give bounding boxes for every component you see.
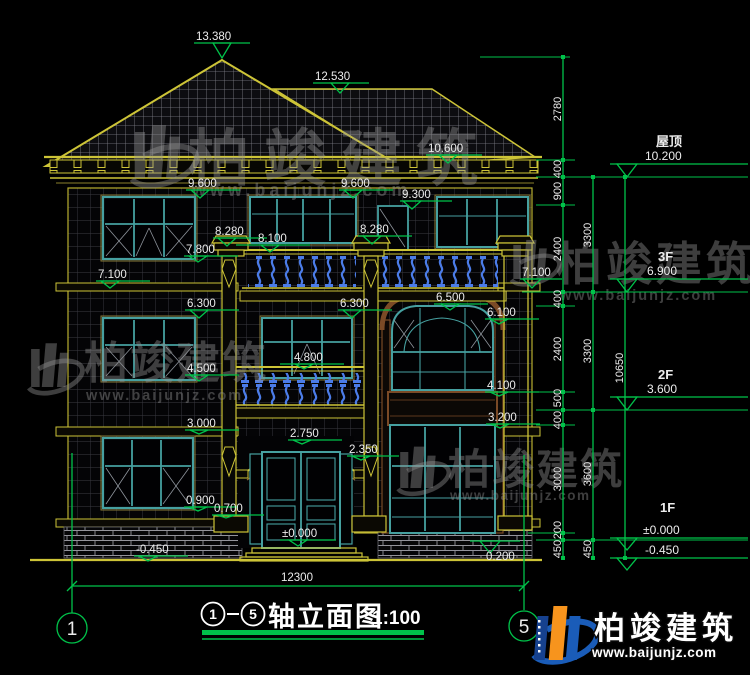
level-value: 3.600 bbox=[647, 382, 677, 396]
title-axis-from: 1 bbox=[209, 606, 217, 622]
elev-label: 7.100 bbox=[98, 269, 127, 281]
elev-label: 7.800 bbox=[186, 244, 215, 256]
axis-bubble-5-label: 5 bbox=[519, 617, 530, 638]
dim-text: 2780 bbox=[552, 97, 564, 121]
elev-label: 13.380 bbox=[196, 31, 231, 43]
elev-label: 2.350 bbox=[349, 444, 378, 456]
title-text: 轴立面图 bbox=[268, 601, 384, 632]
elev-label: 9.600 bbox=[188, 178, 217, 190]
level-value: 10.200 bbox=[645, 149, 682, 163]
elev-label: 6.100 bbox=[487, 307, 516, 319]
elev-label: 9.300 bbox=[402, 189, 431, 201]
dim-text: 10650 bbox=[614, 353, 626, 384]
dim-text: 3300 bbox=[582, 223, 594, 247]
elev-label: 3.200 bbox=[488, 412, 517, 424]
elev-label: 10.600 bbox=[428, 143, 463, 155]
dim-text: 450 bbox=[552, 540, 564, 558]
watermark-text: 柏竣建筑 bbox=[84, 339, 268, 388]
dim-text: 400 bbox=[552, 411, 564, 429]
watermark-text: 柏竣建筑 bbox=[448, 446, 624, 493]
elev-label: 8.100 bbox=[258, 233, 287, 245]
elev-label: 2.750 bbox=[290, 428, 319, 440]
axis-bubble-1-label: 1 bbox=[67, 619, 78, 640]
company-logo: 柏竣建筑 www.baijunjz.com bbox=[527, 606, 738, 669]
dim-text: 3000 bbox=[552, 467, 564, 491]
level-name: 屋顶 bbox=[656, 134, 682, 149]
elev-label: 0.900 bbox=[186, 495, 215, 507]
elev-label: 4.800 bbox=[294, 352, 323, 364]
company-logo-name: 柏竣建筑 bbox=[594, 611, 738, 646]
level-value: 6.900 bbox=[647, 264, 677, 278]
level-name: 1F bbox=[660, 500, 675, 515]
elev-label: 0.200 bbox=[486, 551, 515, 563]
dim-text: 2400 bbox=[552, 237, 564, 261]
width-dim-text: 12300 bbox=[281, 572, 313, 584]
title-underline-thick bbox=[202, 630, 424, 635]
dim-text: 3600 bbox=[582, 462, 594, 486]
elev-label: 8.280 bbox=[215, 226, 244, 238]
elev-label: 12.530 bbox=[315, 71, 350, 83]
elev-label: 6.300 bbox=[187, 298, 216, 310]
elev-label: 8.280 bbox=[360, 224, 389, 236]
spandrel-panel bbox=[388, 392, 497, 425]
dim-text: 3300 bbox=[582, 339, 594, 363]
window-3f-left bbox=[101, 195, 197, 261]
level-name: 3F bbox=[658, 249, 673, 264]
dim-text: 900 bbox=[552, 182, 564, 200]
dim-text: 500 bbox=[552, 389, 564, 407]
dim-text: 400 bbox=[552, 160, 564, 178]
elev-label: 4.100 bbox=[487, 380, 516, 392]
elev-label: 0.700 bbox=[214, 503, 243, 515]
dim-text: 450 bbox=[582, 540, 594, 558]
balcony-3f-center bbox=[240, 250, 364, 301]
title-scale: 1:100 bbox=[372, 608, 421, 629]
elev-label: 3.000 bbox=[187, 418, 216, 430]
window-2f-center bbox=[260, 316, 354, 380]
chain-outer-labels: 10650 bbox=[614, 353, 626, 384]
elev-label: 6.500 bbox=[436, 292, 465, 304]
level-name: 2F bbox=[658, 367, 673, 382]
elev-label: 9.600 bbox=[341, 178, 370, 190]
watermark-url: www.baijunjz.com bbox=[559, 288, 717, 304]
dim-text: 400 bbox=[552, 290, 564, 308]
title-axis-to: 5 bbox=[249, 606, 257, 622]
company-logo-url: www.baijunjz.com bbox=[591, 645, 717, 660]
level-value: -0.450 bbox=[645, 543, 679, 557]
elev-label: 6.300 bbox=[340, 298, 369, 310]
window-1f-left bbox=[101, 436, 195, 510]
elev-label: 4.500 bbox=[187, 363, 216, 375]
dim-text: 200 bbox=[552, 521, 564, 539]
elev-label: ±0.000 bbox=[282, 528, 317, 540]
watermark-url: www.baijunjz.com bbox=[85, 388, 243, 404]
drawing-canvas: 柏竣建筑 www.baijunjz.com 柏竣建筑 www.baijunjz.… bbox=[0, 0, 750, 675]
level-value: ±0.000 bbox=[643, 523, 680, 537]
dim-text: 2400 bbox=[552, 337, 564, 361]
band-3f-left bbox=[56, 283, 238, 291]
cad-elevation-drawing: 柏竣建筑 www.baijunjz.com 柏竣建筑 www.baijunjz.… bbox=[0, 0, 750, 675]
elev-label: 7.100 bbox=[522, 267, 551, 279]
watermark-url: www.baijunjz.com bbox=[449, 488, 591, 503]
elev-label: -0.450 bbox=[136, 544, 169, 556]
